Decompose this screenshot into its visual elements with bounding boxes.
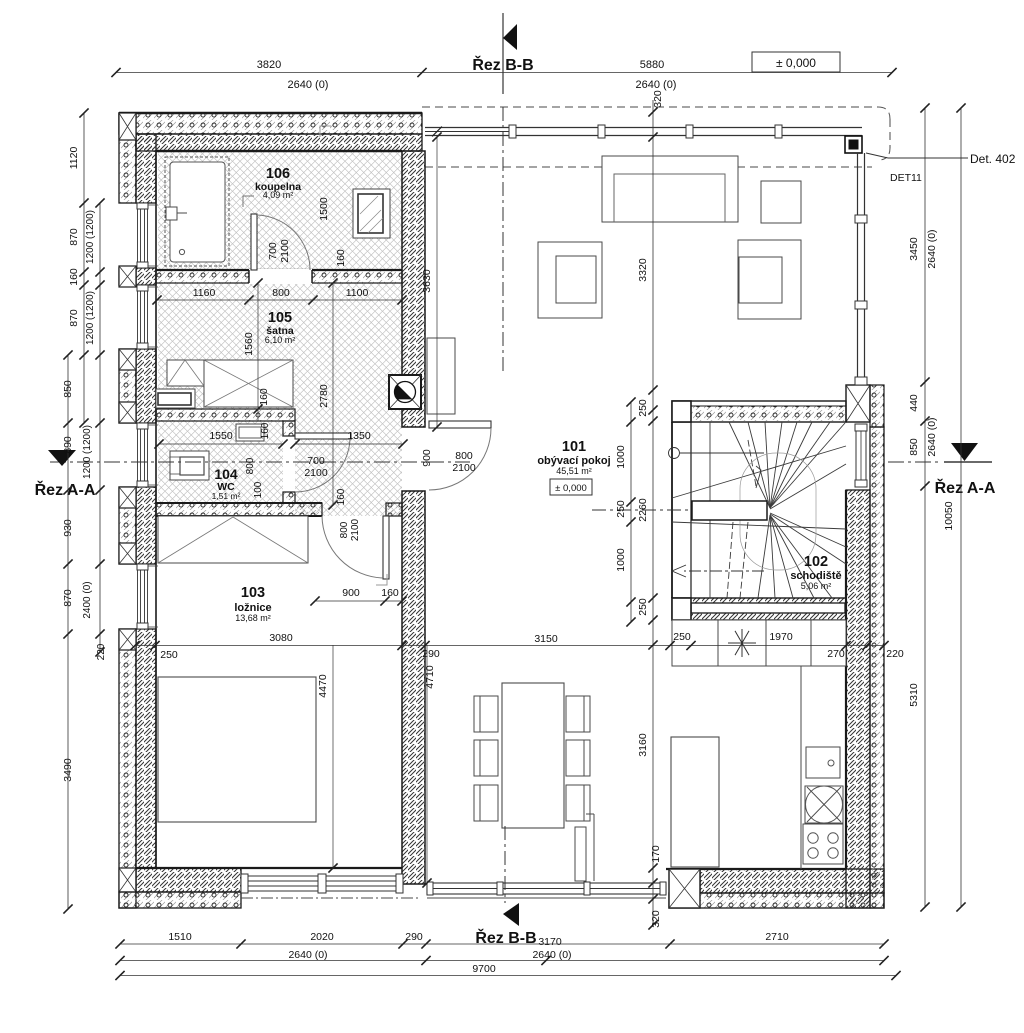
svg-text:10050: 10050 [943,501,955,530]
svg-text:100: 100 [253,481,264,498]
svg-text:160: 160 [381,587,399,599]
svg-text:4470: 4470 [317,674,329,698]
svg-text:250: 250 [637,598,649,616]
svg-text:3160: 3160 [637,733,649,757]
svg-text:2100: 2100 [304,467,328,479]
svg-text:3630: 3630 [421,269,433,293]
svg-text:160: 160 [258,388,270,406]
svg-text:2100: 2100 [279,239,291,263]
svg-text:DET11: DET11 [890,172,922,184]
svg-text:3080: 3080 [269,632,293,644]
svg-text:220: 220 [96,643,107,660]
svg-text:250: 250 [615,500,627,518]
svg-text:160: 160 [335,249,347,267]
svg-text:290: 290 [422,648,440,660]
svg-text:5,06 m²: 5,06 m² [801,581,832,591]
svg-text:250: 250 [160,649,178,661]
svg-text:160: 160 [260,422,271,439]
svg-text:± 0,000: ± 0,000 [555,483,587,494]
svg-text:900: 900 [421,449,433,467]
svg-text:1200 (1200): 1200 (1200) [85,210,96,264]
svg-text:900: 900 [342,587,360,599]
svg-text:4,09 m²: 4,09 m² [263,190,294,200]
svg-text:1510: 1510 [168,931,192,943]
svg-text:250: 250 [673,631,691,643]
svg-text:Řez A-A: Řez A-A [935,478,996,497]
svg-text:270: 270 [827,648,845,660]
svg-text:5880: 5880 [640,59,664,71]
svg-text:1550: 1550 [209,430,233,442]
svg-text:160: 160 [68,268,80,286]
svg-text:3490: 3490 [62,758,74,782]
svg-text:1,51 m²: 1,51 m² [212,491,241,501]
svg-text:2780: 2780 [318,384,330,408]
svg-text:2640 (0): 2640 (0) [532,949,571,961]
svg-text:2640 (0): 2640 (0) [288,79,329,91]
svg-text:1200 (1200): 1200 (1200) [82,425,93,479]
svg-text:1200 (1200): 1200 (1200) [85,291,96,345]
svg-text:800: 800 [272,287,290,299]
svg-text:870: 870 [68,228,80,246]
svg-text:4710: 4710 [424,665,436,689]
svg-text:9700: 9700 [472,963,496,975]
svg-text:870: 870 [68,309,80,327]
svg-text:101: 101 [562,439,586,455]
svg-text:850: 850 [62,380,74,398]
svg-text:105: 105 [268,310,292,326]
svg-text:440: 440 [908,394,920,412]
svg-text:Řez B-B: Řez B-B [472,55,533,74]
svg-text:1120: 1120 [68,147,80,170]
svg-text:850: 850 [908,438,920,456]
svg-text:2640 (0): 2640 (0) [288,949,327,961]
svg-text:2640 (0): 2640 (0) [636,79,677,91]
svg-text:Det. 402: Det. 402 [970,152,1016,166]
svg-text:104: 104 [214,466,238,482]
svg-text:2400 (0): 2400 (0) [82,581,93,618]
svg-text:106: 106 [266,166,290,182]
svg-text:870: 870 [62,589,74,607]
svg-text:2640 (0): 2640 (0) [926,229,938,268]
svg-text:3450: 3450 [908,237,920,261]
svg-text:160: 160 [336,488,347,505]
svg-text:13,68 m²: 13,68 m² [235,613,271,623]
svg-text:3320: 3320 [637,258,649,282]
svg-text:320: 320 [652,90,664,108]
svg-text:2100: 2100 [350,518,361,541]
svg-text:5310: 5310 [908,683,920,707]
svg-text:± 0,000: ± 0,000 [776,56,816,70]
svg-text:890: 890 [62,436,74,454]
svg-text:103: 103 [241,585,265,601]
svg-text:1500: 1500 [318,197,330,221]
svg-text:6,10 m²: 6,10 m² [265,335,296,345]
svg-text:1100: 1100 [346,287,369,299]
svg-text:Řez A-A: Řez A-A [35,480,96,499]
svg-text:3150: 3150 [534,633,558,645]
svg-text:700: 700 [267,242,279,260]
svg-text:1350: 1350 [347,430,371,442]
svg-text:250: 250 [637,399,649,417]
svg-text:290: 290 [405,931,423,943]
svg-text:320: 320 [650,910,662,928]
svg-text:220: 220 [886,648,904,660]
svg-text:1160: 1160 [193,287,216,299]
svg-text:800: 800 [245,457,256,474]
svg-text:2260: 2260 [637,498,649,522]
svg-text:800: 800 [339,521,350,538]
svg-text:45,51 m²: 45,51 m² [556,466,592,476]
svg-text:930: 930 [62,519,74,537]
svg-text:2100: 2100 [452,462,476,474]
svg-text:170: 170 [650,845,662,863]
svg-text:3820: 3820 [257,59,281,71]
svg-text:1560: 1560 [243,332,255,356]
svg-text:2640 (0): 2640 (0) [926,417,938,456]
svg-text:1000: 1000 [615,548,627,572]
svg-text:700: 700 [307,455,325,467]
svg-text:3170: 3170 [538,936,562,948]
svg-text:1970: 1970 [769,631,793,643]
svg-text:2710: 2710 [765,931,789,943]
svg-text:1000: 1000 [615,445,627,469]
svg-text:800: 800 [455,450,473,462]
svg-text:102: 102 [804,554,828,570]
svg-text:2020: 2020 [310,931,334,943]
